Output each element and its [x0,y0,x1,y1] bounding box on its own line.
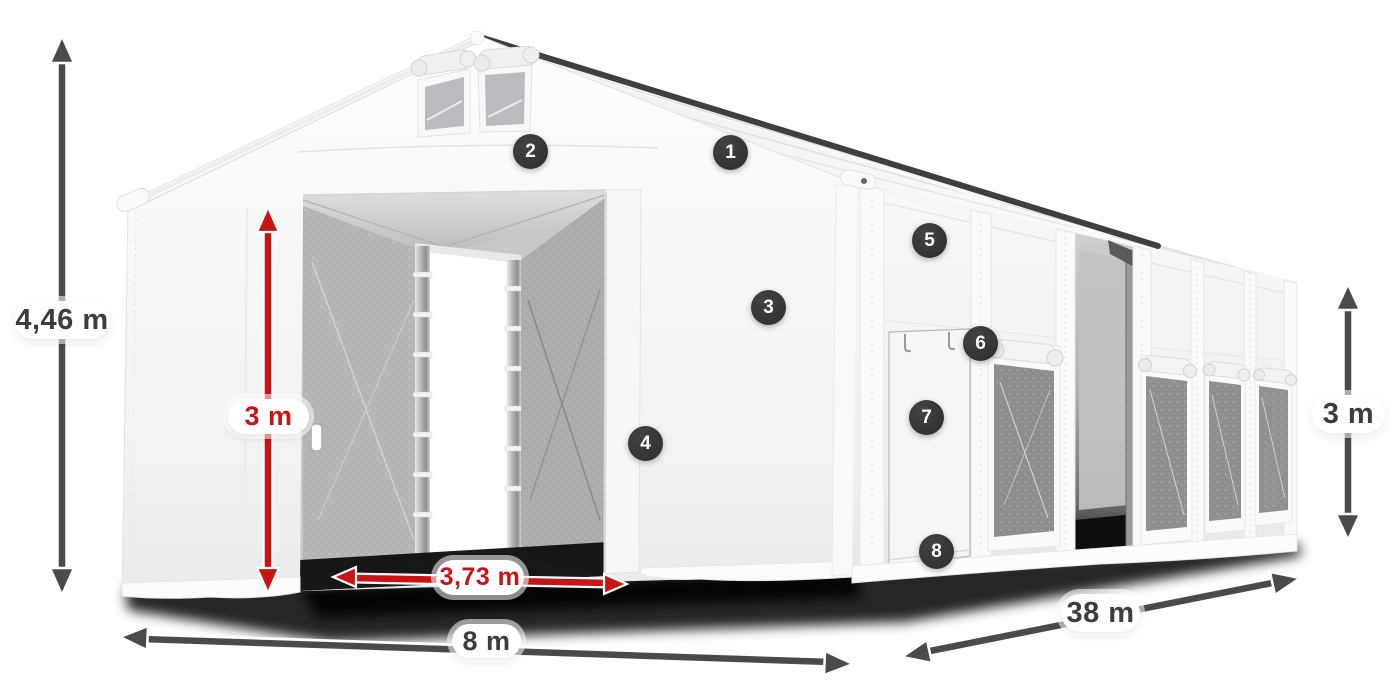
tent-illustration [0,0,1400,700]
side-window [1203,361,1250,534]
right-door-jamb [604,190,641,574]
dimension-label-length: 38 m [1061,594,1140,632]
dimension-label-width: 8 m [452,624,521,658]
dimension-label-entrance-height: 3 m [228,399,309,434]
rear-opening [420,250,510,562]
gable-vent-right [474,46,539,132]
apex-cap [470,31,484,45]
marker-badge-6: 6 [963,326,998,361]
marker-badge-5: 5 [912,223,947,258]
side-door-flap [889,329,970,567]
gable-vent-left [411,49,476,137]
side-window [1254,367,1297,526]
marker-badge-8: 8 [919,534,954,569]
marker-badge-2: 2 [513,134,548,169]
side-window [1139,355,1197,545]
marker-badge-1: 1 [713,135,748,170]
tent-dimensions-diagram: 4,46 m 3 m 3,73 m 8 m 38 m 3 m 1 2 3 4 5… [0,0,1400,700]
dimension-label-side-height: 3 m [1312,395,1385,433]
entrance-interior [300,190,608,591]
dimension-label-total-height: 4,46 m [14,301,110,339]
side-window [988,338,1063,551]
marker-badge-4: 4 [628,426,663,461]
door-handle [311,424,322,451]
marker-badge-3: 3 [751,290,786,325]
dimension-label-entrance-width: 3,73 m [436,560,524,595]
marker-badge-7: 7 [909,400,944,435]
